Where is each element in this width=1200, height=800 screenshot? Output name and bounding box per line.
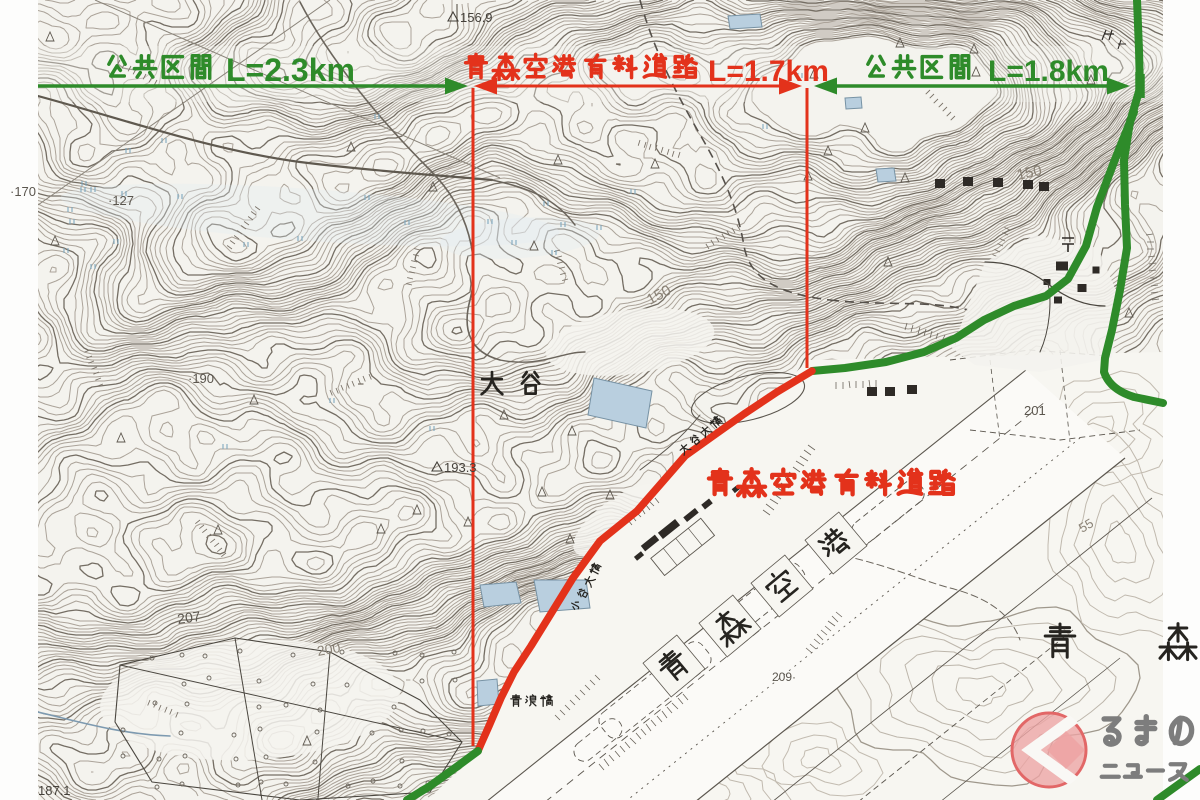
svg-text:187.1: 187.1 [38, 783, 71, 798]
svg-text:·190: ·190 [188, 371, 214, 386]
svg-text:·127: ·127 [108, 193, 134, 208]
svg-text:201: 201 [1024, 403, 1046, 418]
svg-text:L=2.3km: L=2.3km [226, 52, 355, 88]
svg-text:L=1.8km: L=1.8km [988, 55, 1109, 88]
svg-text:156.9: 156.9 [460, 10, 493, 25]
svg-text:·170: ·170 [10, 184, 36, 199]
svg-text:L=1.7km: L=1.7km [708, 55, 829, 88]
svg-text:209·: 209· [772, 670, 796, 684]
svg-text:207: 207 [176, 608, 202, 627]
svg-text:193.3: 193.3 [444, 460, 477, 475]
